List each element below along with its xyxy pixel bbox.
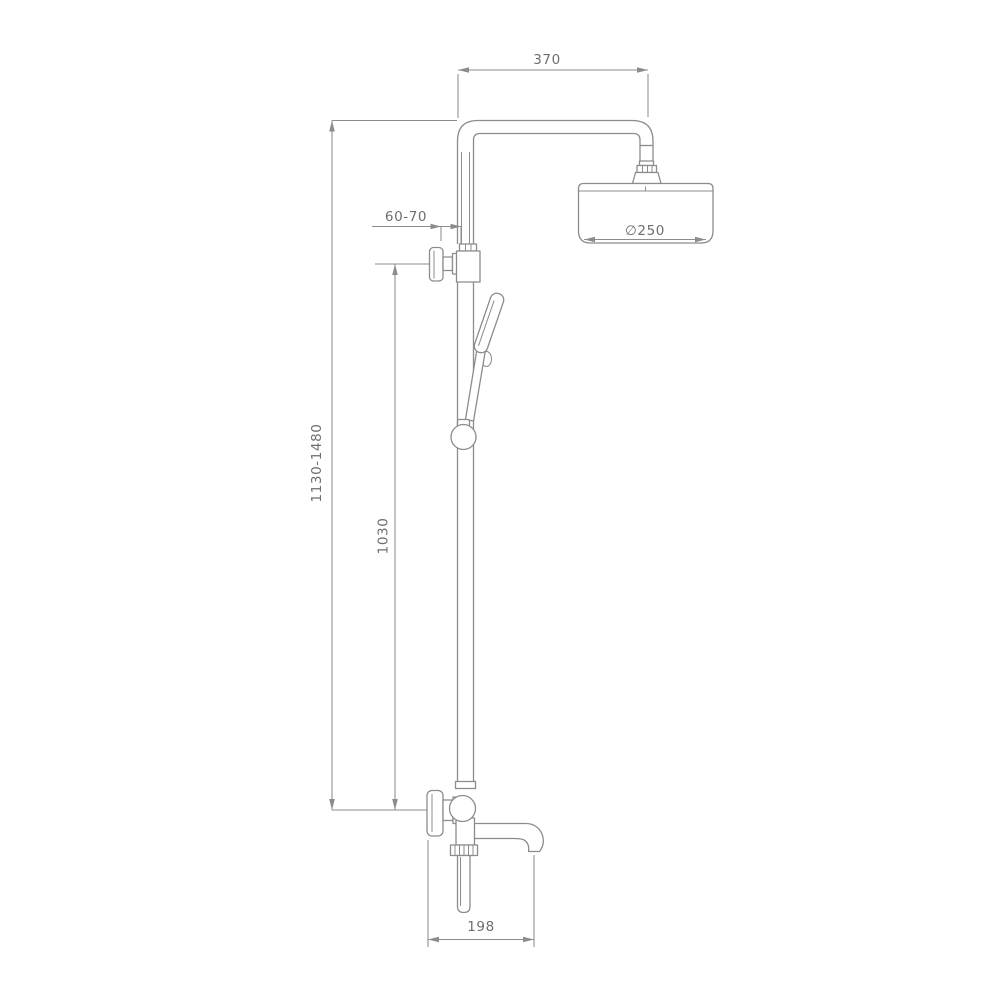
dimension-riser-height: 1030 xyxy=(375,264,429,810)
head-connector-nut xyxy=(633,161,662,184)
dimension-spout-length: 198 xyxy=(428,840,534,947)
dimension-wall-offset: 60-70 xyxy=(372,209,461,244)
dim-label-spout-length: 198 xyxy=(467,919,495,935)
slider-knob xyxy=(451,425,476,450)
valve-collar xyxy=(456,782,476,789)
dim-label-wall-offset: 60-70 xyxy=(385,209,427,225)
hand-shower xyxy=(451,291,505,449)
mixer-valve xyxy=(427,782,543,913)
valve-knob xyxy=(450,796,476,822)
dimension-overall-height: 1130-1480 xyxy=(309,121,457,811)
riser-pipe xyxy=(458,282,474,786)
hose-outlet-drop xyxy=(458,856,471,913)
dim-label-overall-height: 1130-1480 xyxy=(309,424,325,503)
dim-label-head-diameter: ∅250 xyxy=(625,223,665,239)
dimension-arm-length: 370 xyxy=(458,52,648,118)
dim-label-arm-length: 370 xyxy=(533,52,561,68)
dim-label-riser-height: 1030 xyxy=(376,518,392,555)
hand-shower-head xyxy=(473,291,506,354)
bath-spout xyxy=(474,824,543,852)
lower-wall-flange xyxy=(427,791,443,837)
upper-wall-bracket xyxy=(430,244,481,282)
valve-body xyxy=(456,818,475,845)
technical-drawing-canvas: 370 60-70 1130-1480 1030 xyxy=(0,0,1000,1000)
shower-system-diagram: 370 60-70 1130-1480 1030 xyxy=(0,0,1000,1000)
hand-shower-handle xyxy=(466,347,487,421)
